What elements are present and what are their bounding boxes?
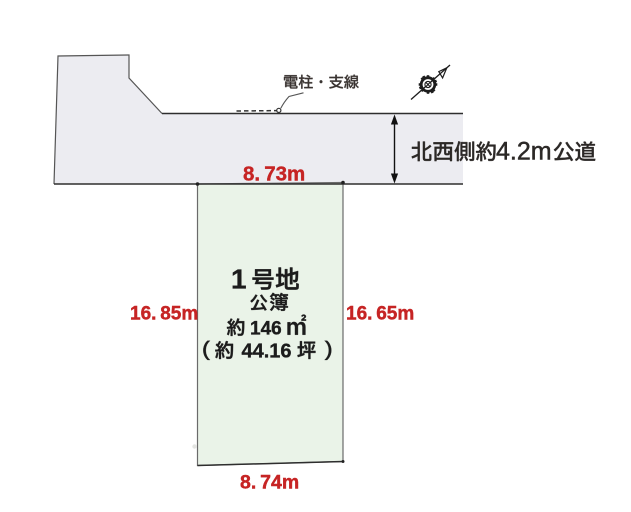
svg-text:16. 65m: 16. 65m [346, 304, 414, 325]
svg-text:8. 73m: 8. 73m [243, 163, 305, 186]
svg-text:8. 74m: 8. 74m [240, 472, 299, 494]
svg-text:1: 1 [231, 264, 247, 295]
svg-text:146: 146 [250, 319, 282, 340]
svg-text:44.16: 44.16 [242, 341, 292, 363]
svg-text:4.2m: 4.2m [496, 138, 552, 166]
svg-text:16. 85m: 16. 85m [130, 304, 198, 325]
